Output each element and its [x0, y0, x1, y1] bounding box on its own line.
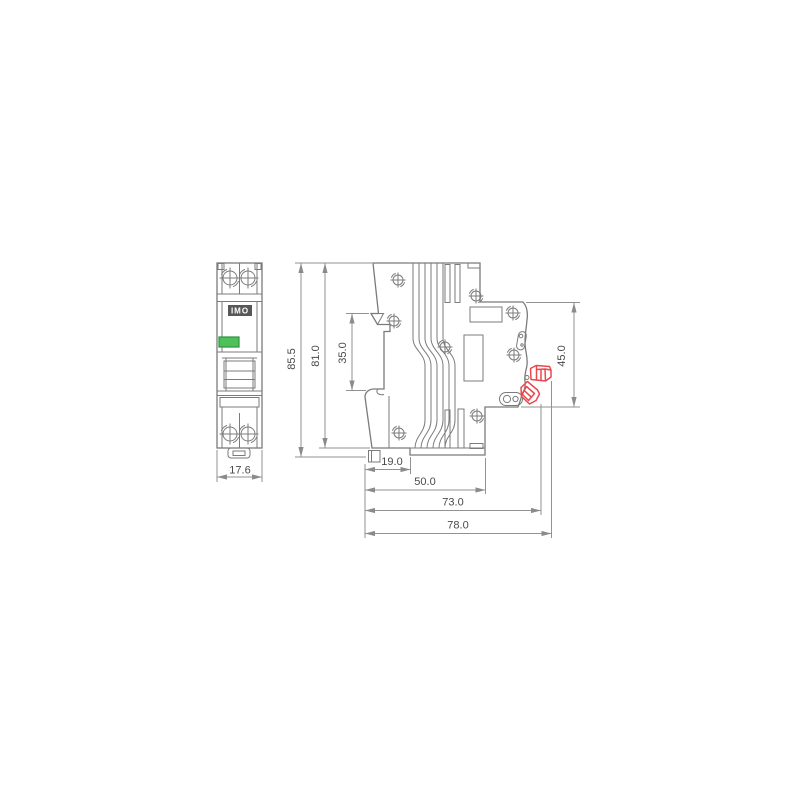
dim-label: 78.0 [447, 520, 468, 532]
terminal-opening-upper [470, 307, 502, 322]
dim-label: 17.6 [229, 465, 250, 477]
screw-mark [220, 424, 241, 445]
screw-mark [238, 424, 259, 445]
front-face: IMO [219, 302, 257, 353]
dim-label: 50.0 [414, 476, 435, 488]
top-edge-notch [468, 263, 480, 268]
toggle-switch-front [217, 352, 262, 407]
screw-mark [238, 268, 259, 289]
dim-overall-height: 85.5 [286, 263, 372, 457]
din-clip-front [228, 448, 250, 458]
status-led [219, 337, 239, 347]
front-top-tab-right [255, 264, 261, 270]
brand-label: IMO [231, 307, 249, 316]
din-clip-release-tab [369, 451, 381, 463]
din-clip-spring [377, 390, 384, 395]
dim-front-width: 17.6 [217, 450, 262, 482]
housing-ribs [413, 263, 483, 449]
technical-drawing-svg: IMO [0, 0, 800, 800]
screw-mark [470, 409, 485, 424]
drawing-canvas: IMO [0, 0, 800, 800]
screw-mark [506, 306, 521, 321]
dim-label: 35.0 [337, 342, 349, 363]
toggle-lever-on-position [531, 366, 552, 382]
front-lower-recess [220, 398, 259, 408]
dim-label: 45.0 [556, 345, 568, 366]
screw-mark [387, 314, 402, 329]
front-bottom-terminal [220, 407, 259, 448]
dim-label: 19.0 [381, 456, 402, 468]
dim-label: 73.0 [442, 497, 463, 509]
screw-mark [438, 340, 453, 355]
toggle-handle-front [224, 361, 255, 388]
screw-mark [391, 273, 406, 288]
screw-mark [392, 426, 407, 441]
din-hook-notch [378, 314, 384, 325]
dim-label: 85.5 [286, 348, 298, 369]
front-top-tab-left [218, 264, 224, 270]
terminal-opening-lower [464, 335, 483, 381]
front-view: IMO [217, 263, 262, 458]
dim-label: 81.0 [310, 345, 322, 366]
screw-mark [469, 289, 484, 304]
dim-din-channel: 35.0 [337, 314, 369, 391]
dim-front-face: 45.0 [521, 303, 580, 408]
side-view [365, 263, 551, 462]
screw-mark [220, 268, 241, 289]
